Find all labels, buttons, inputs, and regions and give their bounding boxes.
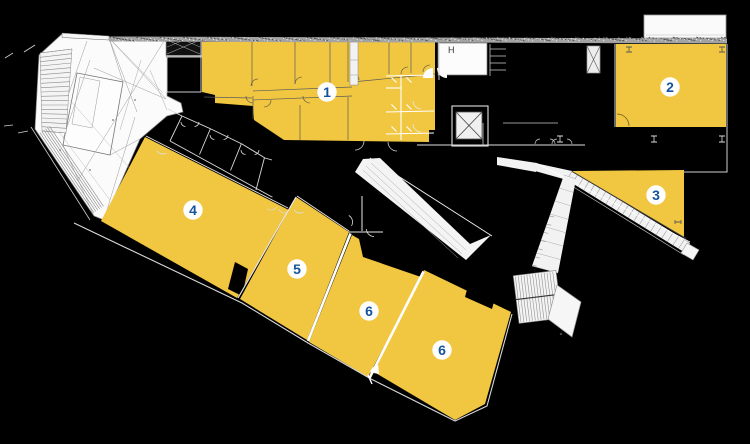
svg-text:3: 3	[652, 187, 660, 203]
svg-text:6: 6	[365, 303, 373, 319]
svg-text:H: H	[448, 45, 455, 55]
svg-text:5: 5	[293, 261, 301, 277]
svg-text:6: 6	[438, 342, 446, 358]
svg-text:1: 1	[323, 84, 331, 100]
svg-text:4: 4	[189, 202, 197, 218]
svg-text:2: 2	[666, 79, 674, 95]
